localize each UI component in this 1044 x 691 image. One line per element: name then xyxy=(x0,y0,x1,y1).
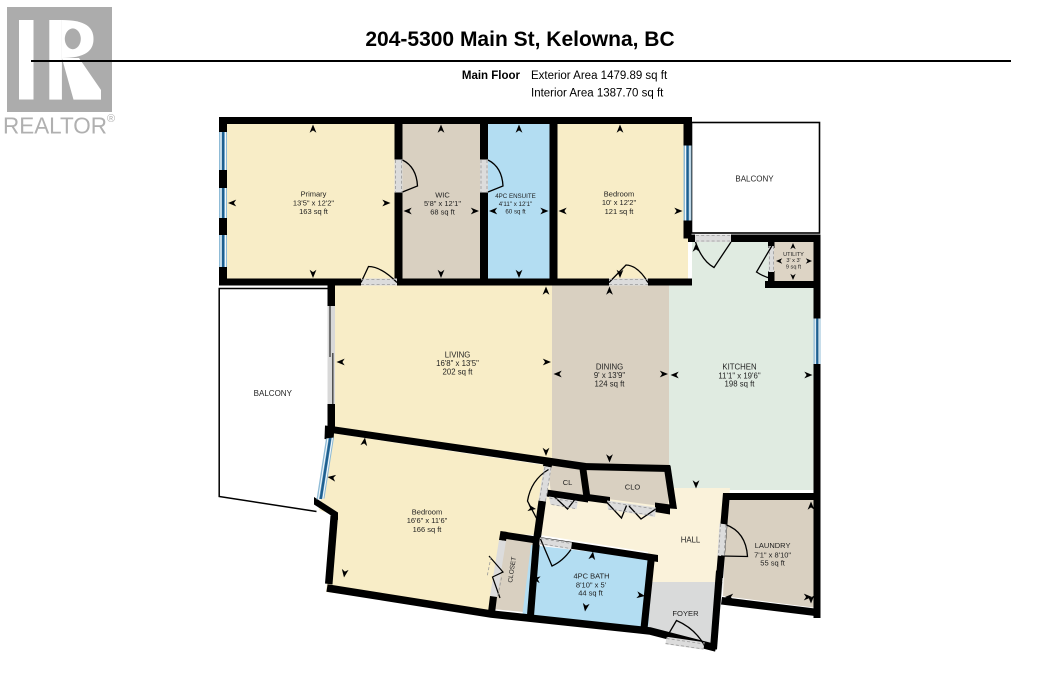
svg-text:44 sq ft: 44 sq ft xyxy=(578,588,604,597)
svg-text:UTILITY: UTILITY xyxy=(783,252,804,258)
svg-text:REALTOR: REALTOR xyxy=(3,113,107,139)
svg-text:198 sq ft: 198 sq ft xyxy=(725,380,756,389)
svg-text:Interior Area 1387.70 sq ft: Interior Area 1387.70 sq ft xyxy=(531,88,664,100)
svg-text:4'11" x 12'1": 4'11" x 12'1" xyxy=(499,201,532,208)
svg-text:68 sq ft: 68 sq ft xyxy=(430,208,456,217)
svg-text:204-5300 Main St, Kelowna, BC: 204-5300 Main St, Kelowna, BC xyxy=(365,28,674,51)
svg-text:4PC ENSUITE: 4PC ENSUITE xyxy=(495,193,536,200)
svg-text:60 sq ft: 60 sq ft xyxy=(505,209,526,216)
svg-text:KITCHEN: KITCHEN xyxy=(722,362,756,371)
svg-text:HALL: HALL xyxy=(681,535,701,544)
svg-text:BALCONY: BALCONY xyxy=(735,175,774,184)
svg-text:202 sq ft: 202 sq ft xyxy=(443,367,474,376)
svg-text:Exterior Area 1479.89 sq ft: Exterior Area 1479.89 sq ft xyxy=(531,70,668,82)
svg-text:CLO: CLO xyxy=(625,483,641,492)
svg-text:LAUNDRY: LAUNDRY xyxy=(755,541,791,550)
svg-text:CL: CL xyxy=(563,478,573,487)
svg-text:Bedroom: Bedroom xyxy=(412,508,442,517)
svg-text:10' x 12'2": 10' x 12'2" xyxy=(602,198,637,207)
svg-text:55 sq ft: 55 sq ft xyxy=(760,559,786,568)
svg-text:124 sq ft: 124 sq ft xyxy=(595,379,626,388)
svg-text:13'5" x 12'2": 13'5" x 12'2" xyxy=(293,198,334,207)
svg-text:166 sq ft: 166 sq ft xyxy=(413,525,443,534)
svg-text:163 sq ft: 163 sq ft xyxy=(299,207,329,216)
svg-text:®: ® xyxy=(107,113,115,125)
svg-text:Main Floor: Main Floor xyxy=(462,70,521,82)
svg-text:BALCONY: BALCONY xyxy=(254,389,293,398)
svg-text:3' x 3': 3' x 3' xyxy=(786,258,800,264)
svg-text:121 sq ft: 121 sq ft xyxy=(605,207,635,216)
svg-text:FOYER: FOYER xyxy=(672,609,699,618)
svg-text:Bedroom: Bedroom xyxy=(604,189,634,198)
svg-text:9 sq ft: 9 sq ft xyxy=(786,264,802,270)
svg-text:Primary: Primary xyxy=(301,190,327,199)
svg-text:4PC BATH: 4PC BATH xyxy=(573,571,609,580)
